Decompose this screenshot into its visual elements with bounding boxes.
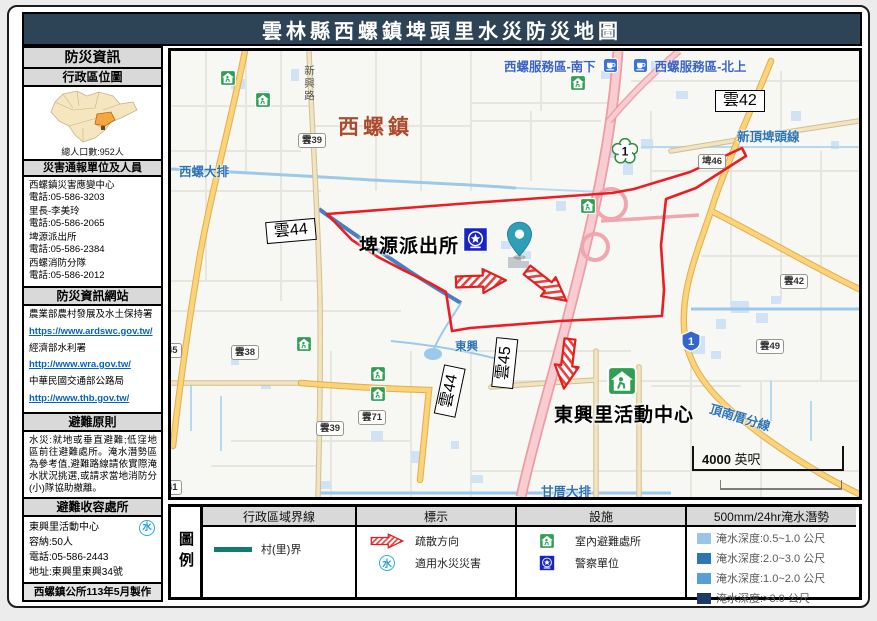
road-shield: 雲39 bbox=[298, 133, 326, 148]
flood-depth-row: 淹水深度:1.0~2.0 公尺 bbox=[689, 570, 854, 586]
township-shape bbox=[25, 88, 161, 146]
service-area-row: 西螺服務區-南下 西螺服務區-北上 bbox=[504, 56, 746, 75]
flood-swatch bbox=[697, 593, 711, 604]
police-icon bbox=[463, 227, 488, 252]
shelter-phone: 電話:05-586-2443 bbox=[29, 550, 157, 565]
shelter-icon-activity-center bbox=[607, 366, 637, 396]
flood-swatch bbox=[697, 553, 711, 564]
township-thumbnail: 總人口數:952人 bbox=[24, 87, 161, 159]
road-shield: 雲42 bbox=[780, 274, 808, 289]
shelter-header: 避難收容處所 bbox=[24, 497, 161, 517]
sidebar: 防災資訊 行政區位圖 總人口數:952人 災害通報單位及人員 西螺鎮災害應變中心… bbox=[22, 46, 163, 602]
legend: 圖例 行政區域界線 村(里)界 標示 疏散方向 bbox=[168, 504, 862, 600]
rest-area-icon bbox=[633, 58, 648, 73]
contact-item: 埤源派出所 電話:05-586-2384 bbox=[29, 232, 157, 255]
road-shield: 埤46 bbox=[698, 154, 726, 169]
population-label: 總人口數:952人 bbox=[24, 145, 161, 158]
contacts-list: 西螺鎮災害應變中心 電話:05-586-3203 里長-李美玲 電話:05-58… bbox=[24, 177, 161, 286]
page-title: 雲林縣西螺鎮埤頭里水災防災地圖 bbox=[22, 12, 862, 46]
shelter-icon bbox=[580, 198, 596, 214]
evacuation-direction-label: 疏散方向 bbox=[415, 533, 459, 549]
flood-applicable-label: 適用水災災害 bbox=[415, 555, 481, 571]
websites-list: 農業部農村發展及水土保持署 https://www.ardswc.gov.tw/… bbox=[24, 306, 161, 412]
flood-depth-row: 淹水深度:0.5~1.0 公尺 bbox=[689, 530, 854, 546]
website-link[interactable]: https://www.ardswc.gov.tw/ bbox=[29, 326, 153, 337]
contacts-header: 災害通報單位及人員 bbox=[24, 159, 161, 177]
xinding-line-label: 新頂埤頭線 bbox=[737, 126, 800, 145]
water-icon: 水 bbox=[139, 520, 155, 536]
shelter-name-row: 東興里活動中心 水 bbox=[29, 520, 157, 535]
highway-1-green-shield-icon bbox=[612, 138, 638, 164]
contact-item: 西螺鎮災害應變中心 電話:05-586-3203 bbox=[29, 180, 157, 203]
sidebar-title: 防災資訊 bbox=[24, 48, 161, 69]
village-boundary-swatch bbox=[214, 547, 252, 552]
water-icon: 水 bbox=[379, 555, 395, 571]
contact-item: 西螺消防分隊 電話:05-586-2012 bbox=[29, 258, 157, 281]
shelter-info: 東興里活動中心 水 容納:50人 電話:05-586-2443 地址:東興里東興… bbox=[24, 517, 161, 582]
police-station-label: 埤源派出所 bbox=[359, 231, 459, 258]
legend-col-marks: 標示 疏散方向 水 適用水災災害 bbox=[357, 507, 517, 597]
flood-swatch bbox=[697, 533, 711, 544]
shelter-icon bbox=[220, 70, 236, 86]
shelter-capacity: 容納:50人 bbox=[29, 535, 157, 550]
road-label-box: 雲44 bbox=[265, 218, 317, 245]
location-pin-icon bbox=[506, 221, 533, 260]
flood-depth-row: 淹水深度:>3.0 公尺 bbox=[689, 590, 854, 606]
shelter-icon bbox=[370, 386, 386, 402]
indoor-shelter-label: 室內避難處所 bbox=[575, 533, 641, 549]
evacuation-arrow-icon bbox=[370, 533, 404, 549]
highlighted-village bbox=[95, 112, 115, 126]
road-shield: 雲38 bbox=[231, 345, 259, 360]
road-label-box: 雲42 bbox=[715, 90, 765, 112]
website-item: 農業部農村發展及水土保持署 https://www.ardswc.gov.tw/ bbox=[29, 309, 157, 339]
gancuo-drain-label: 甘厝大排 bbox=[541, 481, 591, 500]
shelter-icon bbox=[539, 533, 555, 549]
road-shield: 雲49 bbox=[756, 339, 784, 354]
shelter-icon bbox=[570, 75, 586, 91]
website-link[interactable]: http://www.wra.gov.tw/ bbox=[29, 359, 131, 370]
flood-swatch bbox=[697, 573, 711, 584]
scale-bar: 4000 英呎 bbox=[692, 446, 844, 471]
legend-title: 圖例 bbox=[171, 507, 203, 597]
shelter-icon bbox=[296, 336, 312, 352]
highway-1-blue-shield-icon bbox=[681, 330, 701, 352]
legend-col-flood: 500mm/24hr淹水潛勢 淹水深度:0.5~1.0 公尺 淹水深度:2.0~… bbox=[687, 507, 856, 597]
service-area-south-label: 西螺服務區-南下 bbox=[504, 56, 596, 75]
xiluo-drain-label: 西螺大排 bbox=[179, 161, 229, 180]
shelter-icon bbox=[370, 366, 386, 382]
contact-item: 里長-李美玲 電話:05-586-2065 bbox=[29, 206, 157, 229]
activity-center-label: 東興里活動中心 bbox=[554, 400, 694, 427]
road-shield: 雲71 bbox=[358, 410, 386, 425]
admin-map-header: 行政區位圖 bbox=[24, 69, 161, 87]
principles-text: 水災:就地或垂直避難;低窪地區前往避難處所。淹水潛勢區為參考值,避難路線請依實際… bbox=[24, 432, 161, 497]
website-item: 中華民國交通部公路局 http://www.thb.gov.tw/ bbox=[29, 376, 157, 406]
road-shield: 41 bbox=[168, 480, 182, 495]
village-boundary-label: 村(里)界 bbox=[261, 541, 301, 557]
principles-header: 避難原則 bbox=[24, 412, 161, 432]
xinxing-road-label: 新興路 bbox=[302, 65, 317, 103]
legend-col-boundary: 行政區域界線 村(里)界 bbox=[203, 507, 357, 597]
map-area[interactable]: 西螺服務區-南下 西螺服務區-北上 西螺鎮 新興路 西螺大排 新頂埤頭線 頂南厝… bbox=[168, 48, 862, 500]
dongxing-label: 東興 bbox=[455, 338, 478, 354]
website-link[interactable]: http://www.thb.gov.tw/ bbox=[29, 393, 129, 404]
rest-area-icon bbox=[603, 58, 618, 73]
publisher-footer: 西螺鎮公所113年5月製作 bbox=[24, 582, 161, 600]
police-unit-label: 警察單位 bbox=[575, 555, 619, 571]
scale-bar-secondary bbox=[720, 480, 842, 490]
town-label: 西螺鎮 bbox=[338, 111, 413, 141]
shelter-icon bbox=[255, 92, 271, 108]
shelter-address: 地址:東興里東興34號 bbox=[29, 565, 157, 580]
flood-depth-row: 淹水深度:2.0~3.0 公尺 bbox=[689, 550, 854, 566]
road-shield: 雲39 bbox=[316, 421, 344, 436]
police-icon bbox=[539, 555, 555, 571]
website-item: 經濟部水利署 http://www.wra.gov.tw/ bbox=[29, 343, 157, 373]
road-shield: 45 bbox=[168, 343, 182, 358]
service-area-north-label: 西螺服務區-北上 bbox=[655, 56, 747, 75]
websites-header: 防災資訊網站 bbox=[24, 286, 161, 306]
legend-col-facilities: 設施 室內避難處所 警察單位 bbox=[517, 507, 687, 597]
